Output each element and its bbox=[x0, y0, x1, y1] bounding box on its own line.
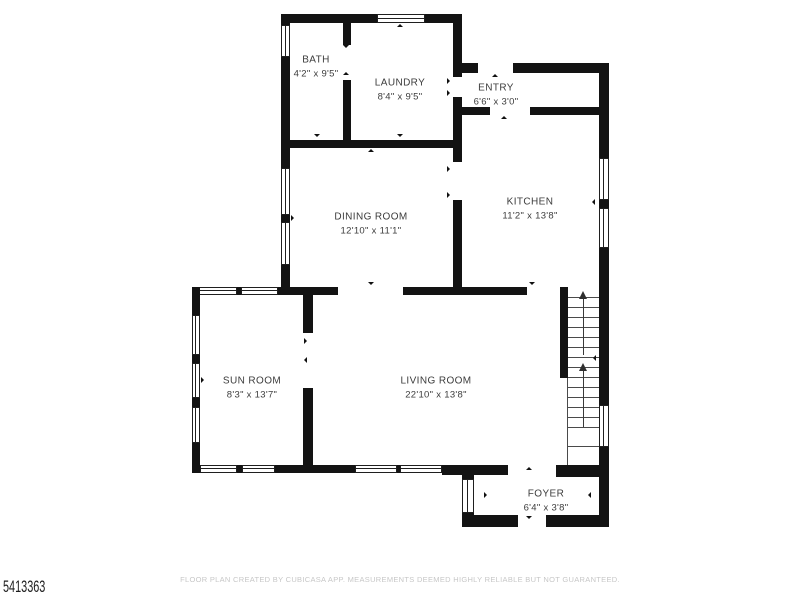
room-name: BATH bbox=[294, 54, 339, 68]
door-marker bbox=[447, 166, 450, 172]
door-marker bbox=[492, 74, 498, 77]
wall-segment bbox=[458, 63, 478, 73]
room-name: FOYER bbox=[524, 488, 569, 502]
wall-segment bbox=[530, 107, 601, 115]
stairs-up-arrow-icon bbox=[583, 371, 584, 427]
window bbox=[241, 287, 278, 295]
door-marker bbox=[501, 116, 507, 119]
window bbox=[400, 465, 442, 473]
room-dimensions: 8'3" x 13'7" bbox=[223, 388, 281, 402]
window bbox=[355, 465, 397, 473]
window bbox=[281, 222, 290, 265]
wall-segment bbox=[281, 57, 290, 168]
wall-segment bbox=[343, 23, 351, 45]
window bbox=[599, 158, 609, 200]
wall-segment bbox=[556, 465, 609, 477]
room-name: SUN ROOM bbox=[223, 375, 281, 389]
wall-segment bbox=[560, 287, 568, 378]
window bbox=[242, 465, 275, 473]
room-dimensions: 11'2" x 13'8" bbox=[502, 209, 557, 223]
door-marker bbox=[304, 338, 307, 344]
window bbox=[462, 479, 474, 513]
room-label-bath: BATH 4'2" x 9'5" bbox=[294, 54, 339, 81]
wall-segment bbox=[303, 388, 313, 467]
door-marker bbox=[343, 72, 349, 75]
window bbox=[281, 25, 290, 57]
wall-segment bbox=[275, 465, 355, 473]
door-marker bbox=[526, 467, 532, 470]
disclaimer-text: FLOOR PLAN CREATED BY CUBICASA APP. MEAS… bbox=[0, 575, 800, 584]
wall-segment bbox=[599, 63, 609, 158]
wall-segment bbox=[281, 14, 290, 25]
door-marker bbox=[529, 282, 535, 285]
wall-segment bbox=[281, 215, 290, 222]
window-marker bbox=[201, 377, 204, 383]
wall-segment bbox=[513, 63, 608, 73]
room-dimensions: 22'10" x 13'8" bbox=[400, 388, 471, 402]
door-marker bbox=[447, 78, 450, 84]
room-name: LAUNDRY bbox=[375, 77, 425, 91]
stair-outline bbox=[567, 446, 599, 447]
door-marker bbox=[304, 357, 307, 363]
window-marker bbox=[291, 215, 294, 221]
wall-segment bbox=[192, 355, 200, 363]
window bbox=[192, 315, 200, 355]
door-marker bbox=[343, 45, 349, 48]
room-label-foyer: FOYER 6'4" x 3'8" bbox=[524, 488, 569, 515]
room-label-entry: ENTRY 6'6" x 3'0" bbox=[474, 82, 519, 109]
room-label-dining-room: DINING ROOM 12'10" x 11'1" bbox=[334, 211, 407, 238]
wall-segment bbox=[442, 465, 508, 475]
room-label-sun-room: SUN ROOM 8'3" x 13'7" bbox=[223, 375, 281, 402]
room-name: ENTRY bbox=[474, 82, 519, 96]
floor-plan: BATH 4'2" x 9'5" LAUNDRY 8'4" x 9'5" ENT… bbox=[0, 0, 800, 600]
door-marker bbox=[588, 492, 591, 498]
wall-segment bbox=[281, 14, 377, 23]
wall-segment bbox=[303, 287, 313, 333]
door-marker bbox=[368, 282, 374, 285]
wall-segment bbox=[403, 287, 527, 295]
window bbox=[599, 208, 609, 248]
door-marker bbox=[526, 516, 532, 519]
wall-segment bbox=[192, 465, 200, 473]
door-marker bbox=[397, 134, 403, 137]
room-dimensions: 6'6" x 3'0" bbox=[474, 95, 519, 109]
window bbox=[192, 363, 200, 398]
wall-segment bbox=[599, 248, 609, 405]
wall-segment bbox=[462, 515, 518, 527]
stairs-up-arrow-icon bbox=[583, 299, 584, 355]
wall-segment bbox=[281, 140, 462, 148]
window-marker bbox=[592, 199, 595, 205]
wall-segment bbox=[599, 200, 609, 208]
room-label-laundry: LAUNDRY 8'4" x 9'5" bbox=[375, 77, 425, 104]
window bbox=[599, 405, 609, 447]
wall-segment bbox=[453, 200, 462, 293]
window bbox=[192, 407, 200, 443]
door-marker bbox=[593, 355, 596, 361]
window-marker bbox=[397, 24, 403, 27]
room-name: LIVING ROOM bbox=[400, 375, 471, 389]
room-label-living-room: LIVING ROOM 22'10" x 13'8" bbox=[400, 375, 471, 402]
room-dimensions: 6'4" x 3'8" bbox=[524, 501, 569, 515]
stairs-up-arrow-icon bbox=[579, 291, 587, 299]
door-marker bbox=[447, 90, 450, 96]
room-dimensions: 8'4" x 9'5" bbox=[375, 90, 425, 104]
stairs-up-arrow-icon bbox=[579, 363, 587, 371]
wall-segment bbox=[192, 398, 200, 407]
room-label-kitchen: KITCHEN 11'2" x 13'8" bbox=[502, 196, 557, 223]
wall-segment bbox=[192, 287, 200, 315]
door-marker bbox=[368, 149, 374, 152]
door-marker bbox=[484, 492, 487, 498]
window bbox=[200, 465, 237, 473]
window bbox=[377, 14, 425, 23]
room-dimensions: 12'10" x 11'1" bbox=[334, 224, 407, 238]
wall-segment bbox=[343, 80, 351, 140]
room-name: KITCHEN bbox=[502, 196, 557, 210]
door-marker bbox=[447, 192, 450, 198]
wall-segment bbox=[546, 515, 609, 527]
window bbox=[281, 168, 290, 215]
room-dimensions: 4'2" x 9'5" bbox=[294, 67, 339, 81]
room-name: DINING ROOM bbox=[334, 211, 407, 225]
window bbox=[198, 287, 237, 295]
door-marker bbox=[314, 134, 320, 137]
